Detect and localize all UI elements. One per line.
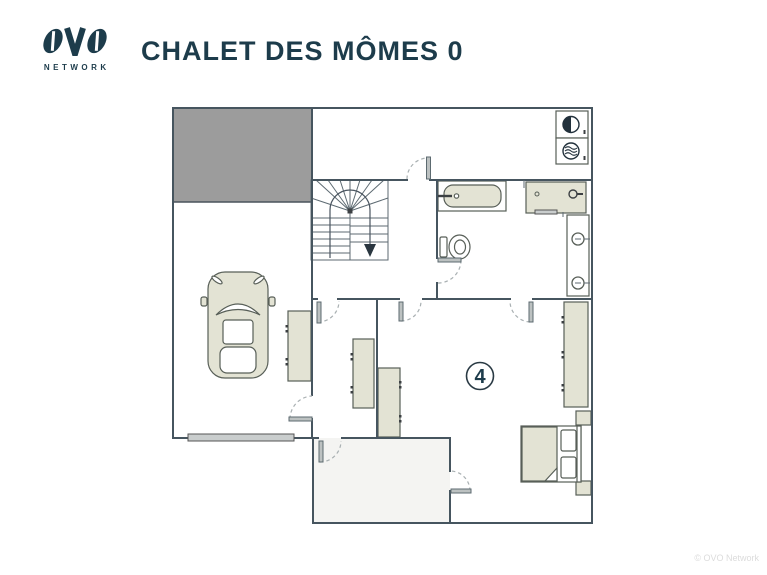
nightstand-bottom [576, 481, 591, 495]
boot-room-floor [313, 438, 450, 523]
wardrobe-hall-left [353, 339, 374, 408]
door-leaf [451, 489, 471, 493]
bracket [286, 330, 289, 333]
car-icon [201, 272, 275, 378]
headboard [577, 426, 581, 482]
door-hall-left [317, 301, 339, 323]
bracket [286, 325, 289, 328]
washing-machine-box [556, 111, 588, 138]
bracket [399, 415, 402, 418]
bathtub [438, 181, 506, 211]
staircase-newel [348, 209, 353, 214]
door-bootroom-side [451, 471, 471, 493]
page: NETWORK CHALET DES MÔMES 0 [0, 0, 767, 575]
staircase-steps-right [350, 218, 388, 242]
door-leaf [399, 302, 403, 321]
pillow-top [561, 430, 576, 451]
garage-void [173, 108, 312, 202]
double-bed [521, 411, 591, 495]
nightstand-top [576, 411, 591, 425]
door-leaf [438, 258, 461, 262]
door-toilet [438, 258, 461, 283]
door-hall-right [399, 301, 421, 321]
bracket [562, 321, 565, 324]
bracket [562, 389, 565, 392]
toilet-bowl [449, 235, 470, 259]
copyright-text: © OVO Network [694, 553, 759, 563]
bracket [562, 351, 565, 354]
bracket [351, 353, 354, 356]
floor-plan: 4 [0, 0, 767, 575]
shower [526, 182, 586, 217]
down-arrow-icon [364, 244, 376, 257]
door-bedroom [510, 301, 533, 322]
door-leaf [427, 157, 431, 179]
bracket [399, 420, 402, 423]
laundry-appliances [556, 111, 588, 164]
room-number: 4 [474, 366, 486, 388]
door-leaf [319, 441, 323, 462]
car-mirror-left [201, 297, 207, 306]
staircase-winders [311, 180, 388, 211]
dryer-mark [584, 156, 586, 160]
bracket [562, 384, 565, 387]
car-sunroof [223, 320, 253, 344]
wardrobe-hall-right [378, 368, 400, 437]
washer-mark [584, 130, 586, 134]
bathtub-drain [454, 194, 458, 198]
bracket [351, 386, 354, 389]
bracket [351, 358, 354, 361]
bracket [286, 363, 289, 366]
shower-screen [535, 210, 557, 214]
bracket [286, 358, 289, 361]
towel-radiator [567, 215, 590, 296]
bracket [562, 356, 565, 359]
wardrobe-bedroom [564, 302, 588, 407]
door-leaf [529, 302, 533, 322]
door-leaf [317, 302, 321, 323]
toilet-tank [440, 237, 447, 257]
door-laundry [407, 157, 431, 179]
wardrobes [286, 302, 589, 437]
bracket [351, 391, 354, 394]
room-number-badge: 4 [467, 363, 494, 390]
wardrobe-garage [288, 311, 311, 381]
toilet [440, 235, 470, 259]
staircase [311, 180, 388, 260]
dryer-box [556, 138, 588, 164]
shower-tray [526, 182, 586, 213]
door-garage [289, 396, 312, 421]
door-leaf [289, 417, 312, 421]
towel-radiator-body [567, 215, 589, 296]
bracket [399, 386, 402, 389]
car-rear-window [220, 347, 256, 373]
bracket [399, 381, 402, 384]
bathtub-basin [444, 185, 501, 207]
car-mirror-right [269, 297, 275, 306]
garage-door [188, 434, 294, 441]
bracket [562, 316, 565, 319]
pillow-bottom [561, 457, 576, 478]
